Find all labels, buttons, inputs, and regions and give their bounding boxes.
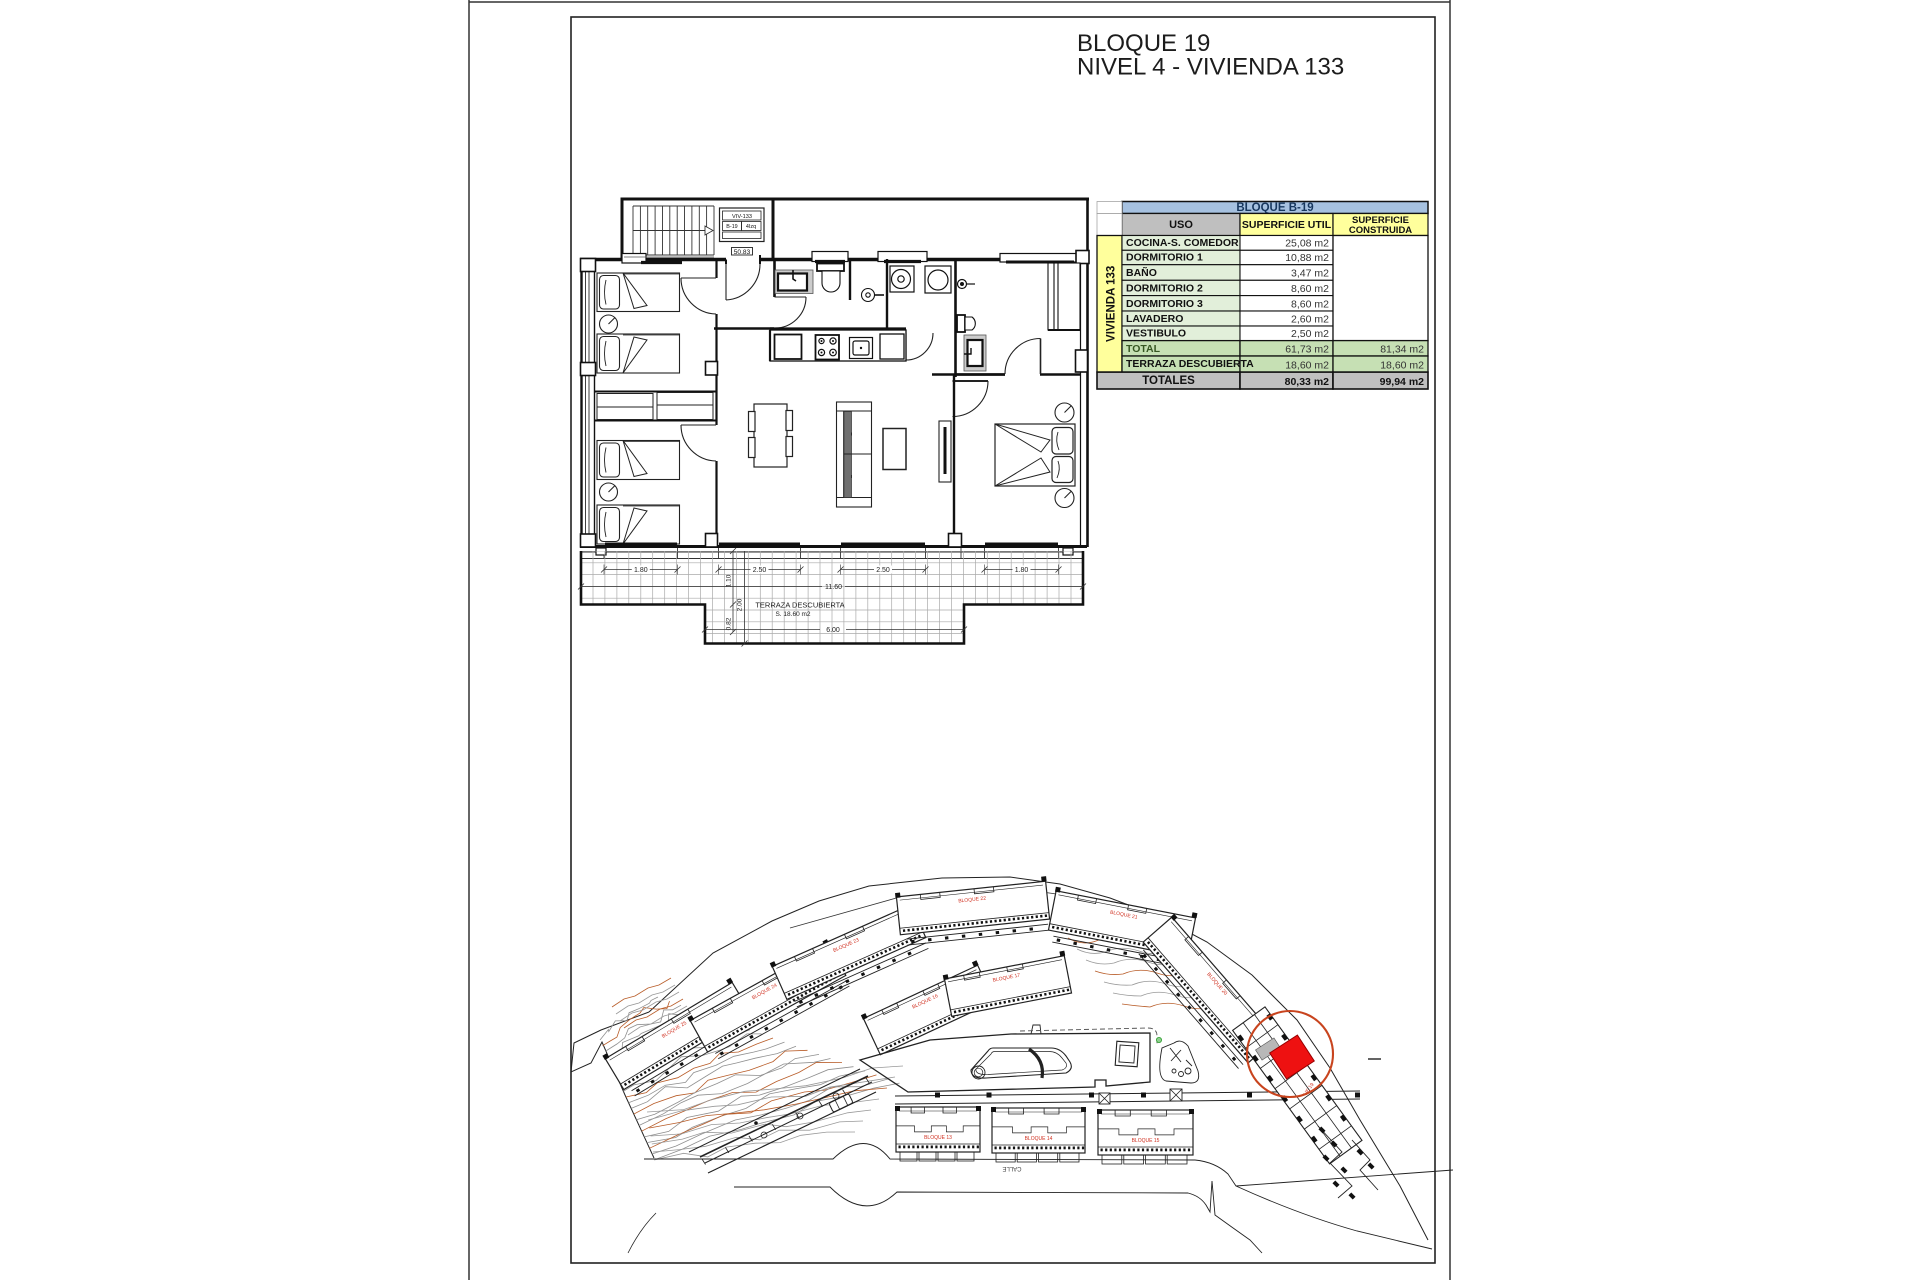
- svg-text:61,73 m2: 61,73 m2: [1285, 343, 1329, 355]
- svg-text:80,33 m2: 80,33 m2: [1285, 376, 1330, 388]
- svg-text:10,88 m2: 10,88 m2: [1285, 252, 1329, 264]
- svg-text:8,60 m2: 8,60 m2: [1291, 283, 1329, 295]
- svg-text:2,60 m2: 2,60 m2: [1291, 313, 1329, 325]
- svg-text:2,50 m2: 2,50 m2: [1291, 328, 1329, 340]
- svg-text:SUPERFICIE UTIL: SUPERFICIE UTIL: [1242, 219, 1332, 231]
- svg-text:8,60 m2: 8,60 m2: [1291, 298, 1329, 310]
- svg-text:VIVIENDA 133: VIVIENDA 133: [1106, 266, 1118, 342]
- svg-text:2.50: 2.50: [753, 567, 767, 574]
- svg-text:B-19: B-19: [726, 224, 737, 230]
- svg-text:DORMITORIO 3: DORMITORIO 3: [1126, 298, 1203, 310]
- svg-text:TOTAL: TOTAL: [1126, 343, 1161, 355]
- svg-text:1.80: 1.80: [634, 567, 648, 574]
- svg-text:18,60 m2: 18,60 m2: [1285, 360, 1329, 372]
- svg-text:18,60 m2: 18,60 m2: [1380, 360, 1424, 372]
- svg-text:LAVADERO: LAVADERO: [1126, 313, 1183, 325]
- svg-text:2.50: 2.50: [876, 567, 890, 574]
- svg-text:DORMITORIO 1: DORMITORIO 1: [1126, 252, 1203, 264]
- svg-text:NIVEL 4 - VIVIENDA 133: NIVEL 4 - VIVIENDA 133: [1077, 54, 1344, 81]
- svg-text:VESTIBULO: VESTIBULO: [1126, 327, 1186, 339]
- svg-text:USO: USO: [1169, 219, 1193, 231]
- svg-text:BLOQUE 14: BLOQUE 14: [1025, 1136, 1053, 1142]
- svg-text:0.82: 0.82: [726, 617, 733, 630]
- svg-text:3,47 m2: 3,47 m2: [1291, 268, 1329, 280]
- svg-text:99,94 m2: 99,94 m2: [1380, 376, 1425, 388]
- svg-text:TOTALES: TOTALES: [1142, 375, 1195, 387]
- svg-text:BLOQUE 13: BLOQUE 13: [924, 1135, 952, 1141]
- svg-text:BAÑO: BAÑO: [1126, 266, 1157, 279]
- svg-text:2.00: 2.00: [737, 598, 744, 611]
- svg-text:VIV-133: VIV-133: [732, 214, 752, 220]
- svg-text:TERRAZA DESCUBIERTA: TERRAZA DESCUBIERTA: [1126, 358, 1254, 370]
- svg-text:1.80: 1.80: [1015, 567, 1029, 574]
- svg-text:81,34 m2: 81,34 m2: [1380, 343, 1424, 355]
- svg-text:COCINA-S. COMEDOR: COCINA-S. COMEDOR: [1126, 237, 1239, 249]
- svg-text:1.10: 1.10: [726, 574, 733, 587]
- svg-text:BLOQUE 15: BLOQUE 15: [1132, 1138, 1160, 1144]
- svg-text:50.83: 50.83: [734, 249, 751, 256]
- svg-text:TERRAZA DESCUBIERTA: TERRAZA DESCUBIERTA: [755, 601, 844, 610]
- svg-text:CONSTRUIDA: CONSTRUIDA: [1349, 225, 1412, 236]
- svg-text:DORMITORIO 2: DORMITORIO 2: [1126, 282, 1203, 294]
- svg-text:4Izq: 4Izq: [746, 224, 756, 230]
- svg-text:S. 18.60 m2: S. 18.60 m2: [775, 611, 810, 618]
- svg-text:CALLE: CALLE: [1002, 1165, 1021, 1171]
- svg-text:11.60: 11.60: [825, 584, 842, 591]
- svg-text:6.00: 6.00: [826, 627, 840, 634]
- svg-text:BLOQUE B-19: BLOQUE B-19: [1236, 202, 1313, 214]
- svg-text:25,08 m2: 25,08 m2: [1285, 238, 1329, 250]
